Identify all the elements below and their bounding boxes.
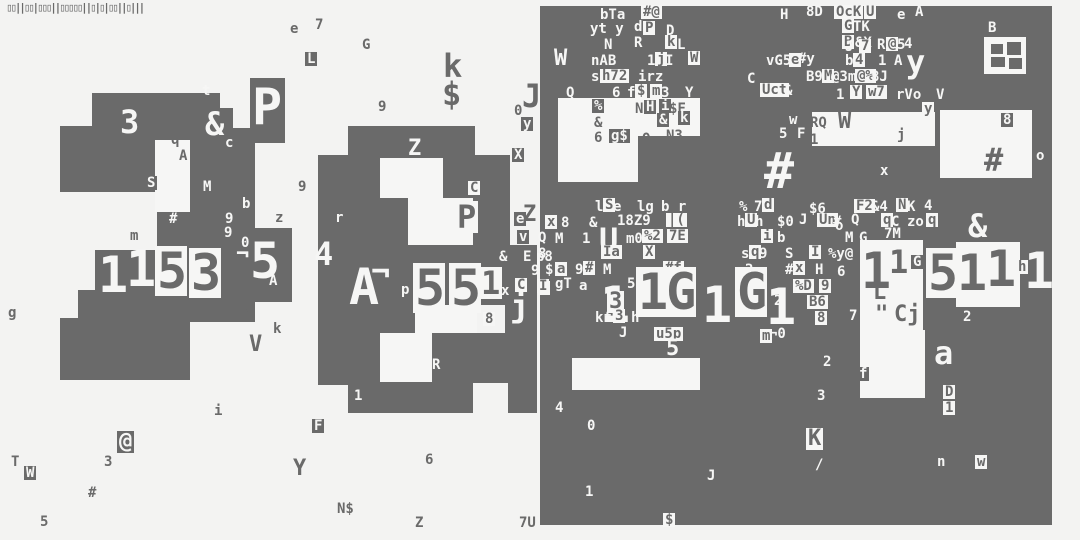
glyph: lg (637, 200, 654, 214)
glyph: z (275, 211, 283, 225)
glyph: x (501, 284, 509, 298)
glyph: M (603, 263, 611, 277)
glyph: 8J (871, 70, 888, 84)
glyph: b (242, 197, 250, 211)
glyph: |( (666, 213, 687, 227)
glyph: irz (638, 70, 663, 84)
glyph: Y (850, 85, 862, 99)
glyph: 8 (1001, 113, 1013, 127)
glyph: y (521, 117, 533, 131)
glyph: G (362, 38, 370, 52)
glyph: % (592, 99, 604, 113)
glyph: F (312, 419, 324, 433)
glyph: g (8, 306, 16, 320)
glyph: 9 (224, 226, 232, 240)
glyph: C (747, 72, 755, 86)
glyph: C (468, 181, 480, 195)
checker-icon-cell (991, 57, 1005, 67)
glyph: w7 (866, 85, 887, 99)
glyph: rVo (896, 88, 921, 102)
glyph: #y (798, 52, 815, 66)
glyph: Z (523, 204, 536, 226)
glyph: 8 (815, 311, 827, 325)
glyph: 1 (810, 133, 818, 147)
glyph: 7 (315, 18, 323, 32)
glyph: Y (685, 86, 693, 100)
glyph: 6 (612, 86, 620, 100)
glyph: 7 (849, 309, 857, 323)
glyph: a (555, 262, 567, 276)
glyph: J (619, 326, 627, 340)
glyph: 3 (817, 389, 825, 403)
glyph: 1 (585, 485, 593, 499)
glyph: 5 (40, 515, 48, 529)
glyph: N (635, 102, 643, 116)
glyph: J (707, 469, 715, 483)
glyph: h (755, 215, 763, 229)
glyph: 8 (538, 247, 546, 261)
glyph: b (777, 231, 785, 245)
glyph: a (579, 279, 587, 293)
glyph: P (252, 82, 280, 132)
glyph: s (591, 70, 599, 84)
glyph: 8 (483, 312, 495, 326)
glyph: %D (793, 279, 814, 293)
glyph: i (214, 404, 222, 418)
glyph: A (269, 274, 277, 288)
glyph: t (202, 84, 210, 98)
glyph: M (555, 232, 563, 246)
glyph: 1 (582, 232, 590, 246)
glyph: 1 (126, 244, 154, 294)
glyph: %y@ (828, 247, 853, 261)
glyph: ▯▯||▯▯|▯▯▯||▯▯▯▯▯||▯|▯|▯▯||▯||| (6, 2, 143, 13)
glyph: # (764, 146, 792, 196)
glyph: p (401, 283, 409, 297)
glyph: L (873, 282, 886, 304)
glyph: S (785, 247, 793, 261)
glyph: Cj (894, 304, 921, 326)
glyph: e (290, 22, 298, 36)
glyph: K (907, 200, 915, 214)
glyph: f (857, 367, 869, 381)
glyph: j (897, 128, 905, 142)
glyph: 6 (594, 131, 602, 145)
glyph: 8D (806, 5, 823, 19)
glyph: X (512, 148, 524, 162)
glyph: 9 (759, 247, 767, 261)
glyph: 4 (924, 199, 932, 213)
glyph: 5 (666, 338, 679, 360)
glyph: V (936, 88, 944, 102)
glyph: %2 (642, 229, 663, 243)
glyph: ¬ (371, 256, 390, 288)
glyph: i (761, 229, 773, 243)
glyph: 5 (449, 263, 481, 313)
glyph: 2 (823, 355, 831, 369)
glyph: D (943, 385, 955, 399)
glyph: 4 (853, 53, 865, 67)
glyph: W (554, 48, 567, 70)
glyph: @3m (831, 70, 856, 84)
glyph: 0 (514, 104, 522, 118)
glyph: $ (635, 84, 647, 98)
glyph: #@ (641, 5, 662, 19)
glyph: E (521, 250, 533, 264)
glyph: H (780, 8, 788, 22)
glyph: A (915, 5, 923, 19)
glyph: 8 (561, 216, 569, 230)
blob-rect (60, 126, 155, 192)
glyph: vG5 (766, 54, 791, 68)
blob-rect (92, 93, 220, 128)
glyph: J (522, 80, 541, 112)
glyph: 9 (378, 100, 386, 114)
glyph: 1 (957, 248, 985, 298)
glyph: W (24, 466, 36, 480)
glyph: / (815, 458, 823, 472)
glyph: U (864, 5, 876, 19)
glyph: r (335, 211, 343, 225)
glyph: OcK (834, 5, 863, 19)
glyph: & (589, 216, 597, 230)
glyph: 1 (98, 250, 126, 300)
glyph: N$ (337, 502, 354, 516)
glyph: 9 (819, 279, 831, 293)
glyph: 1 (702, 280, 730, 330)
glyph: N3 (666, 129, 683, 143)
glyph: 18Z9 (617, 214, 651, 228)
glyph: H (644, 100, 656, 114)
glyph: N (604, 38, 612, 52)
glyph: R (634, 36, 642, 50)
glyph: 5 (627, 277, 635, 291)
glyph: k (273, 322, 281, 336)
glyph: k (678, 111, 690, 125)
glyph: 6 (837, 265, 845, 279)
glyph: I (665, 54, 673, 68)
glyph: & (499, 250, 507, 264)
glyph: 2 (774, 294, 782, 308)
glyph: # (583, 261, 595, 275)
glyph: K (806, 428, 823, 450)
glyph: zo (907, 215, 924, 229)
glyph: d (634, 20, 642, 34)
glyph: h (631, 311, 639, 325)
glyph: & (657, 113, 669, 127)
glyph: y (906, 46, 925, 78)
glyph: B (988, 21, 996, 35)
glyph: F (795, 127, 807, 141)
hole-rect (572, 358, 700, 390)
glyph: Z (415, 516, 423, 530)
glyph: & (594, 116, 602, 130)
glyph: ¬ (236, 244, 249, 266)
glyph: ¬0 (769, 327, 786, 341)
glyph: 1 (836, 88, 844, 102)
glyph: bTa (600, 8, 625, 22)
glyph: d (762, 198, 774, 212)
glyph: $0 (777, 215, 794, 229)
glyph: Z (408, 138, 421, 160)
glitch-canvas: ▯▯||▯▯|▯▯▯||▯▯▯▯▯||▯|▯|▯▯||▯|||e7GLk$9J0… (0, 0, 1080, 540)
glyph: 7M (884, 227, 901, 241)
glyph: 1 (986, 244, 1014, 294)
glyph: o (1036, 149, 1044, 163)
glyph: $ (442, 78, 461, 110)
glyph: v (517, 230, 529, 244)
glyph: P (643, 21, 655, 35)
glyph: I (537, 279, 549, 293)
glyph: 1 (479, 267, 502, 299)
glyph: g$ (609, 129, 630, 143)
glyph: L (305, 52, 317, 66)
glyph: j (510, 290, 529, 322)
glyph: S (145, 176, 157, 190)
glyph: 1G (636, 267, 696, 317)
hole-rect (860, 330, 925, 398)
glyph: 3 (104, 455, 112, 469)
glyph: y (922, 102, 934, 116)
blob-rect (348, 382, 473, 413)
glyph: 7U (519, 516, 536, 530)
glyph: k (665, 35, 677, 49)
blob-rect (432, 333, 508, 383)
glyph: H (815, 263, 823, 277)
glyph: M (845, 231, 853, 245)
glyph: 4 (314, 238, 333, 270)
checker-icon-cell (991, 44, 1003, 54)
glyph: A (179, 149, 187, 163)
glyph: L (677, 38, 685, 52)
hole-rect (812, 112, 935, 146)
glyph: h (1016, 260, 1028, 274)
glyph: O (642, 132, 650, 146)
glyph: % (242, 306, 250, 320)
glyph: kf (595, 311, 612, 325)
blob-rect (508, 333, 537, 413)
glyph: & (784, 84, 792, 98)
glyph: $ (545, 263, 553, 277)
glyph: $ (663, 513, 675, 527)
glyph: d (707, 104, 715, 118)
hole-rect (380, 333, 432, 382)
glyph: 5 (413, 263, 445, 313)
glyph: 0 (587, 419, 595, 433)
glyph: W (838, 111, 851, 133)
glyph: n (937, 455, 945, 469)
glyph: J (845, 40, 853, 54)
glyph: G (911, 255, 923, 269)
glyph: 1 (878, 54, 886, 68)
glyph: 9 (225, 212, 233, 226)
glyph: 3 (613, 309, 625, 323)
glyph: Q (851, 213, 859, 227)
glyph: x (880, 164, 888, 178)
glyph: A (894, 54, 902, 68)
glyph: q (171, 133, 179, 147)
glyph: Q (538, 231, 546, 245)
glyph: x (545, 215, 557, 229)
glyph: T (11, 455, 19, 469)
glyph: nAB (591, 54, 616, 68)
glyph: R (432, 358, 440, 372)
glyph: q (926, 213, 938, 227)
glyph: " (875, 304, 888, 326)
glyph: @ (117, 431, 134, 453)
glyph: Y (293, 458, 306, 480)
glyph: W (688, 51, 700, 65)
glyph: o (835, 219, 843, 233)
glyph: 3 (120, 106, 139, 138)
glyph: e (613, 200, 621, 214)
glyph: 9 (298, 180, 306, 194)
glyph: a (934, 337, 953, 369)
glyph: 5 (926, 248, 958, 298)
glyph: e (897, 8, 905, 22)
glyph: B9 (806, 70, 823, 84)
glyph: 5 (155, 246, 187, 296)
glyph: m0 (626, 232, 643, 246)
glyph: # (169, 212, 177, 226)
glyph: Q (566, 86, 574, 100)
glyph: w (975, 455, 987, 469)
glyph: 5 (897, 38, 905, 52)
glyph: yt y (590, 22, 624, 36)
glyph: h72 (600, 69, 629, 83)
glyph: B6 (807, 295, 828, 309)
glyph: c (225, 136, 233, 150)
glyph: 9 (531, 264, 539, 278)
glyph: X (643, 245, 655, 259)
glyph: 1 (943, 401, 955, 415)
glyph: 6 (425, 453, 433, 467)
glyph: # (984, 144, 1003, 176)
glyph: gT (555, 277, 572, 291)
glyph: 4 (555, 401, 563, 415)
checker-icon-cell (1007, 42, 1021, 55)
glyph: x (793, 261, 805, 275)
glyph: M (203, 180, 211, 194)
glyph: # (88, 486, 96, 500)
hole-rect (380, 158, 443, 198)
glyph: G (735, 267, 767, 317)
glyph: I (809, 245, 821, 259)
glyph: RQ (810, 116, 827, 130)
glyph: TK (853, 20, 870, 34)
glyph: P (455, 201, 478, 233)
glyph: 7E (667, 229, 688, 243)
glyph: 3 (189, 248, 221, 298)
glyph: & (205, 108, 224, 140)
glyph: 5 (777, 127, 789, 141)
glyph: J (799, 213, 807, 227)
glyph: 1 (889, 246, 908, 278)
glyph: & (968, 210, 987, 242)
glyph: R (877, 38, 885, 52)
checker-icon-cell (1009, 58, 1022, 69)
glyph: Ia (601, 245, 622, 259)
glyph: 2 (963, 310, 971, 324)
glyph: 1 (354, 389, 362, 403)
glyph: 7 (859, 39, 871, 53)
glyph: V (249, 334, 262, 356)
